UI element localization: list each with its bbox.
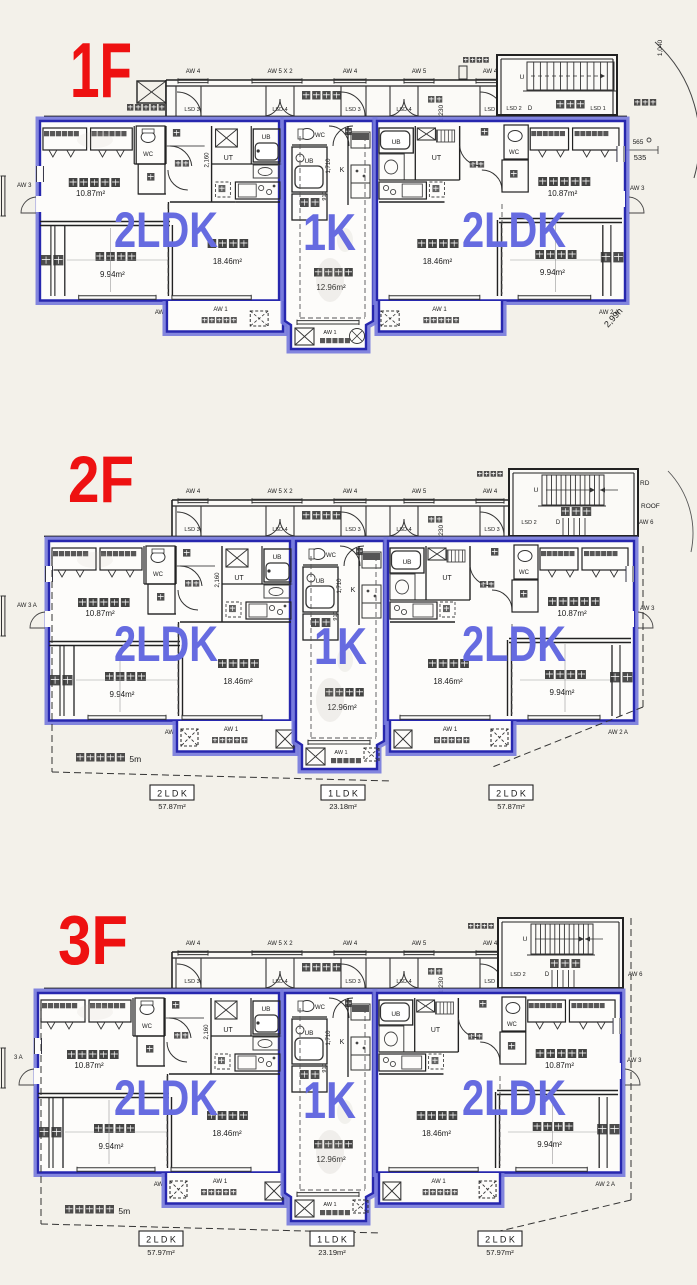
svg-text:D: D	[528, 106, 533, 112]
svg-text:9.94m²: 9.94m²	[540, 268, 565, 277]
svg-text:WC: WC	[519, 570, 530, 576]
svg-text:UB: UB	[391, 1011, 400, 1018]
svg-text:UT: UT	[431, 1027, 441, 1034]
svg-text:AW 6: AW 6	[628, 972, 643, 978]
svg-text:K: K	[351, 587, 356, 594]
svg-text:WC: WC	[142, 1024, 153, 1030]
svg-text:D: D	[556, 520, 561, 526]
svg-text:D: D	[545, 972, 550, 978]
svg-text:LSD 4: LSD 4	[396, 107, 411, 113]
svg-text:3 A: 3 A	[14, 1055, 23, 1061]
svg-text:AW 3 A: AW 3 A	[17, 603, 37, 609]
svg-text:UT: UT	[223, 1027, 233, 1034]
svg-text:AW 4: AW 4	[186, 69, 201, 75]
svg-text:ROOF: ROOF	[641, 503, 660, 510]
svg-text:AW 5 X 2: AW 5 X 2	[267, 489, 293, 495]
svg-text:9.94m²: 9.94m²	[99, 1142, 124, 1151]
svg-text:2 L D K: 2 L D K	[146, 1235, 176, 1245]
svg-text:AW 2 A: AW 2 A	[608, 730, 628, 736]
svg-text:AW 1: AW 1	[443, 727, 458, 733]
svg-text:LSD 2: LSD 2	[510, 972, 525, 978]
svg-text:535: 535	[634, 153, 647, 162]
svg-text:AW 1: AW 1	[213, 307, 228, 313]
svg-text:UB: UB	[304, 158, 313, 165]
svg-text:WC: WC	[315, 1005, 326, 1011]
svg-text:2LDK: 2LDK	[114, 616, 218, 672]
svg-text:18.46m²: 18.46m²	[223, 677, 253, 686]
svg-text:AW 4: AW 4	[483, 489, 498, 495]
svg-text:5m: 5m	[116, 1206, 130, 1216]
svg-text:23.18m²: 23.18m²	[329, 802, 357, 811]
svg-text:LSD 4: LSD 4	[272, 979, 287, 985]
svg-text:LSD 3: LSD 3	[345, 527, 360, 533]
svg-text:AW 1: AW 1	[323, 1202, 336, 1208]
svg-text:AW 5: AW 5	[412, 69, 427, 75]
svg-text:9.94m²: 9.94m²	[550, 688, 575, 697]
svg-text:UT: UT	[442, 575, 452, 582]
svg-text:AW 4: AW 4	[343, 69, 358, 75]
svg-text:AW 5 X 2: AW 5 X 2	[267, 941, 293, 947]
svg-text:2,160: 2,160	[204, 1024, 210, 1040]
svg-text:2LDK: 2LDK	[114, 1070, 218, 1126]
svg-text:WC: WC	[315, 133, 326, 139]
svg-text:9.94m²: 9.94m²	[100, 270, 125, 279]
svg-text:10.87m²: 10.87m²	[74, 1061, 104, 1070]
svg-text:AW 5: AW 5	[412, 941, 427, 947]
svg-text:AW 3: AW 3	[627, 1058, 642, 1064]
svg-text:UB: UB	[262, 134, 271, 141]
svg-text:UT: UT	[234, 575, 244, 582]
svg-text:AW 1: AW 1	[334, 750, 347, 756]
svg-text:2F: 2F	[68, 442, 134, 516]
svg-text:UB: UB	[315, 578, 324, 585]
svg-text:23.19m²: 23.19m²	[318, 1248, 346, 1257]
svg-text:LSD 4: LSD 4	[272, 107, 287, 113]
svg-text:57.87m²: 57.87m²	[158, 802, 186, 811]
svg-text:57.97m²: 57.97m²	[486, 1248, 514, 1257]
svg-text:1 L D K: 1 L D K	[328, 789, 358, 799]
svg-text:AW 3: AW 3	[17, 183, 32, 189]
svg-text:LSD 3: LSD 3	[345, 107, 360, 113]
svg-text:AW 4: AW 4	[343, 489, 358, 495]
svg-text:LSD 2: LSD 2	[521, 520, 536, 526]
svg-text:WC: WC	[509, 150, 520, 156]
svg-text:18.46m²: 18.46m²	[433, 677, 463, 686]
svg-text:LSD 3: LSD 3	[184, 527, 199, 533]
svg-text:UB: UB	[261, 1006, 270, 1013]
svg-text:AW 5: AW 5	[412, 489, 427, 495]
svg-text:WC: WC	[143, 152, 154, 158]
svg-text:AW 1: AW 1	[432, 307, 447, 313]
svg-text:UT: UT	[224, 155, 234, 162]
svg-text:AW 1: AW 1	[431, 1179, 446, 1185]
svg-text:2,160: 2,160	[205, 152, 211, 168]
svg-text:LSD 3: LSD 3	[345, 979, 360, 985]
svg-text:57.87m²: 57.87m²	[497, 802, 525, 811]
svg-text:LSD 3: LSD 3	[184, 107, 199, 113]
svg-text:2LDK: 2LDK	[462, 1070, 566, 1126]
svg-text:K: K	[340, 1039, 345, 1046]
svg-text:2 L D K: 2 L D K	[485, 1235, 515, 1245]
svg-text:AW 4: AW 4	[483, 69, 498, 75]
svg-text:1,040: 1,040	[657, 39, 664, 56]
svg-text:10.87m²: 10.87m²	[85, 609, 115, 618]
svg-text:U: U	[534, 487, 539, 494]
svg-text:LSD 1: LSD 1	[590, 106, 605, 112]
svg-text:AW 5 X 2: AW 5 X 2	[267, 69, 293, 75]
svg-text:2LDK: 2LDK	[114, 202, 218, 258]
svg-text:AW 4: AW 4	[483, 941, 498, 947]
svg-text:K: K	[340, 167, 345, 174]
svg-text:1K: 1K	[303, 204, 356, 262]
svg-text:3F: 3F	[58, 901, 128, 979]
svg-text:18.46m²: 18.46m²	[422, 1129, 451, 1138]
svg-text:UT: UT	[432, 155, 442, 162]
svg-text:WC: WC	[153, 572, 164, 578]
svg-text:AW 3: AW 3	[640, 606, 655, 612]
svg-text:2 L D K: 2 L D K	[496, 789, 526, 799]
svg-text:LSD 2: LSD 2	[506, 106, 521, 112]
svg-text:AW 6: AW 6	[639, 520, 654, 526]
svg-text:57.97m²: 57.97m²	[147, 1248, 175, 1257]
svg-text:UB: UB	[392, 139, 401, 146]
svg-text:2LDK: 2LDK	[462, 202, 566, 258]
svg-text:18.46m²: 18.46m²	[423, 257, 453, 266]
svg-text:LSD 3: LSD 3	[484, 527, 499, 533]
svg-text:AW 2 A: AW 2 A	[595, 1182, 615, 1188]
svg-text:UB: UB	[272, 554, 281, 561]
svg-text:10.87m²: 10.87m²	[76, 189, 105, 198]
svg-text:10.87m²: 10.87m²	[548, 189, 578, 198]
svg-text:UB: UB	[402, 559, 411, 566]
svg-text:10.87m²: 10.87m²	[545, 1061, 574, 1070]
svg-text:2LDK: 2LDK	[462, 616, 566, 672]
svg-text:2,160: 2,160	[215, 572, 221, 588]
svg-text:AW 1: AW 1	[323, 330, 336, 336]
svg-text:AW 4: AW 4	[186, 489, 201, 495]
svg-text:AW 4: AW 4	[186, 941, 201, 947]
svg-text:9.94m²: 9.94m²	[537, 1140, 562, 1149]
svg-text:LSD 4: LSD 4	[396, 527, 411, 533]
svg-text:1 L D K: 1 L D K	[317, 1235, 347, 1245]
svg-text:9.94m²: 9.94m²	[110, 690, 135, 699]
svg-text:WC: WC	[326, 553, 337, 559]
svg-text:U: U	[523, 936, 528, 943]
svg-text:AW 4: AW 4	[343, 941, 358, 947]
svg-text:1F: 1F	[70, 26, 132, 114]
svg-text:18.46m²: 18.46m²	[212, 1129, 242, 1138]
svg-text:AW 1: AW 1	[224, 727, 239, 733]
svg-text:18.46m²: 18.46m²	[213, 257, 242, 266]
svg-text:565: 565	[633, 139, 644, 146]
svg-text:AW 1: AW 1	[213, 1179, 228, 1185]
svg-text:LSD 4: LSD 4	[272, 527, 287, 533]
svg-text:AW 3: AW 3	[630, 186, 645, 192]
svg-text:UB: UB	[304, 1030, 313, 1037]
svg-text:5m: 5m	[127, 754, 141, 764]
svg-text:LSD 3: LSD 3	[184, 979, 199, 985]
svg-text:WC: WC	[507, 1022, 518, 1028]
svg-text:RD: RD	[640, 480, 650, 487]
svg-text:1K: 1K	[314, 618, 367, 676]
svg-text:LSD 4: LSD 4	[396, 979, 411, 985]
svg-text:2 L D K: 2 L D K	[157, 789, 187, 799]
svg-text:1K: 1K	[303, 1072, 356, 1130]
svg-text:U: U	[520, 74, 525, 81]
